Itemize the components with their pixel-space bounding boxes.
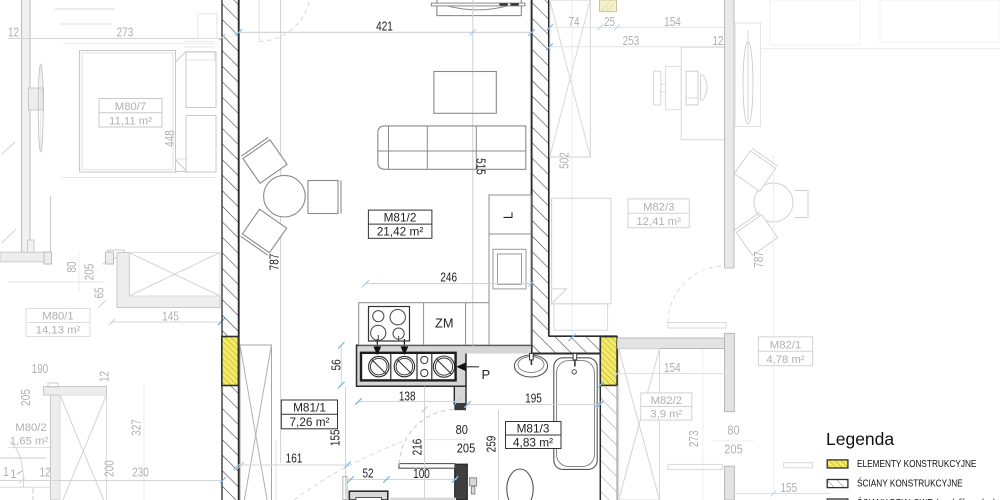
svg-text:1: 1 [3,466,9,479]
svg-text:21,42 m²: 21,42 m² [377,225,424,239]
svg-text:ZM: ZM [435,316,453,331]
svg-text:M82/3: M82/3 [643,202,674,214]
svg-text:14,13 m²: 14,13 m² [36,325,81,337]
svg-text:200: 200 [104,460,117,477]
svg-text:M81/3: M81/3 [517,422,550,436]
svg-text:12: 12 [8,26,19,39]
svg-text:155: 155 [329,429,342,446]
svg-text:205: 205 [20,389,33,406]
svg-text:273: 273 [117,26,134,39]
svg-text:3,9 m²: 3,9 m² [650,409,682,421]
svg-text:502: 502 [558,152,571,169]
svg-text:246: 246 [440,271,457,284]
svg-text:52: 52 [362,468,373,481]
svg-text:4,78 m²: 4,78 m² [766,354,805,366]
svg-text:7,26 m²: 7,26 m² [290,415,330,429]
svg-text:ELEMENTY KONSTRUKCYJNE: ELEMENTY KONSTRUKCYJNE [857,458,976,469]
svg-text:448: 448 [164,130,177,147]
svg-text:421: 421 [376,21,393,34]
svg-text:25: 25 [604,16,615,29]
svg-text:12: 12 [99,371,112,382]
svg-text:11,11 m²: 11,11 m² [109,115,152,127]
svg-text:327: 327 [130,419,143,436]
svg-text:787: 787 [268,254,281,271]
svg-text:80: 80 [727,423,740,438]
svg-text:Legenda: Legenda [826,429,894,449]
svg-text:M81/1: M81/1 [293,401,326,415]
svg-text:253: 253 [623,35,640,48]
svg-text:155: 155 [780,482,797,495]
svg-text:145: 145 [162,310,179,323]
svg-text:12: 12 [712,35,723,48]
svg-text:205: 205 [457,440,476,455]
svg-text:216: 216 [412,439,425,456]
svg-text:ŚCIANY KONSTRUKCYJNE: ŚCIANY KONSTRUKCYJNE [857,477,963,489]
svg-text:205: 205 [724,442,743,457]
svg-text:154: 154 [664,16,681,29]
svg-text:74: 74 [568,16,579,29]
svg-text:205: 205 [83,264,96,281]
svg-text:273: 273 [688,430,701,447]
svg-text:12: 12 [39,467,50,480]
svg-text:230: 230 [132,467,149,480]
svg-text:M82/1: M82/1 [770,340,801,352]
svg-text:M81/2: M81/2 [384,210,417,224]
svg-text:100: 100 [413,468,430,481]
svg-text:M80/2: M80/2 [15,422,46,434]
svg-text:515: 515 [473,158,486,175]
svg-text:4,83 m²: 4,83 m² [513,435,553,449]
svg-text:154: 154 [664,362,681,375]
svg-text:80: 80 [456,422,469,437]
svg-text:195: 195 [525,393,542,406]
svg-text:80: 80 [66,261,79,272]
svg-text:787: 787 [753,251,766,268]
svg-text:190: 190 [32,363,49,376]
svg-text:1,65 m²: 1,65 m² [10,436,49,448]
svg-text:ŚCIANY DZIAŁOWE (modyfikowalne: ŚCIANY DZIAŁOWE (modyfikowalne) [857,496,995,500]
svg-text:259: 259 [486,436,499,453]
svg-text:M80/7: M80/7 [115,101,146,113]
svg-text:M80/1: M80/1 [42,311,73,323]
svg-text:12,41 m²: 12,41 m² [636,216,681,228]
svg-text:138: 138 [399,390,416,403]
svg-text:P: P [482,367,491,382]
svg-text:M82/2: M82/2 [651,395,682,407]
svg-text:161: 161 [286,452,303,465]
svg-text:65: 65 [94,287,107,298]
svg-text:1: 1 [10,467,17,481]
svg-text:56: 56 [331,359,344,370]
svg-text:L: L [501,212,516,219]
